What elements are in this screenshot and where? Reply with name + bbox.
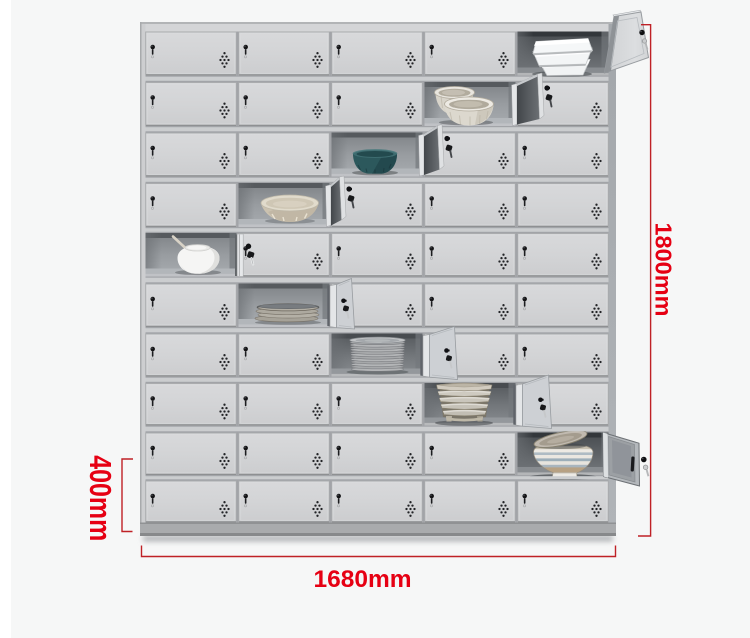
- svg-text:1680mm: 1680mm: [313, 566, 411, 593]
- svg-text:1800mm: 1800mm: [651, 222, 677, 316]
- svg-text:400mm: 400mm: [83, 455, 117, 541]
